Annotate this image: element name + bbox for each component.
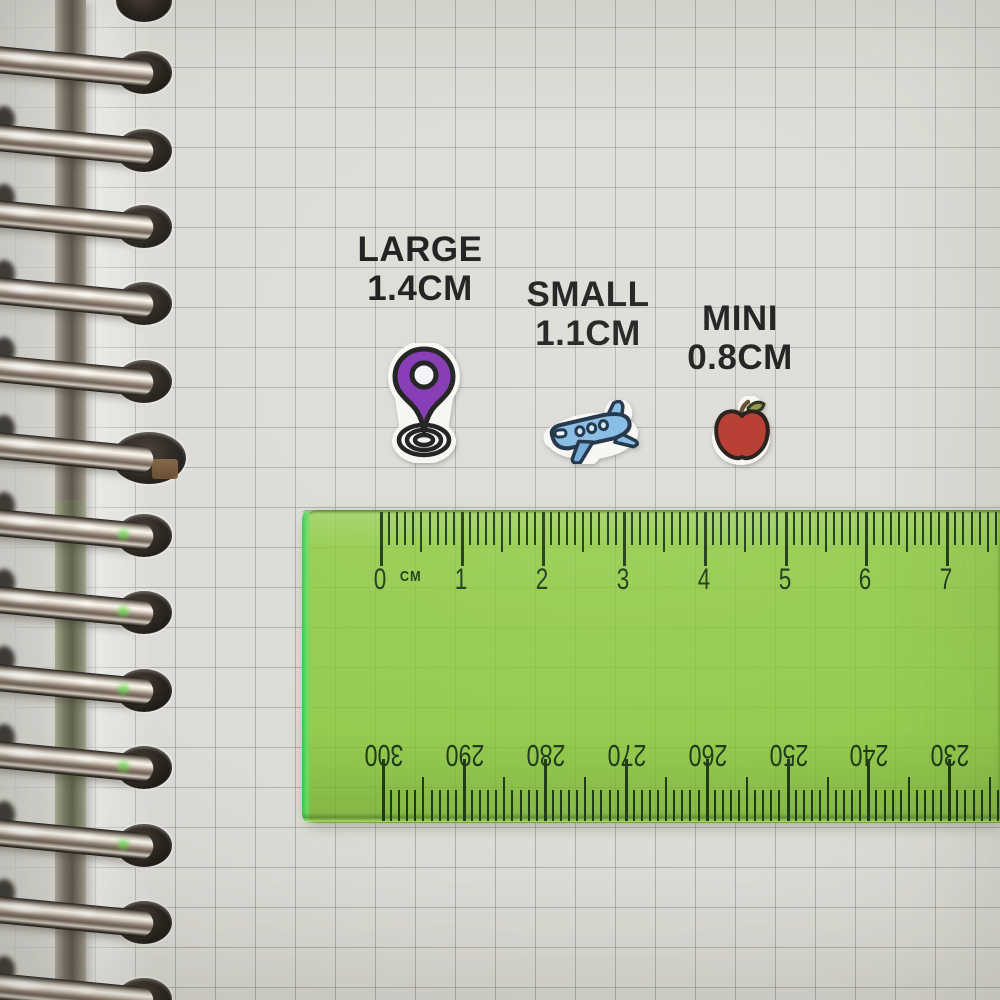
ruler-tick: [776, 512, 778, 545]
ruler-tick: [568, 790, 570, 821]
ruler-tick: [485, 512, 487, 545]
size-name: LARGE: [310, 230, 530, 269]
ruler-number: 270: [604, 737, 649, 773]
ruler-tick: [898, 512, 900, 545]
ruler-reflection-glint: [115, 757, 133, 776]
ruler-left-edge: [302, 510, 311, 823]
ruler-tick: [406, 790, 408, 821]
ruler-tick: [875, 790, 877, 821]
airplane-sticker: [542, 400, 646, 464]
ruler-tick: [770, 790, 772, 821]
ruler-tick: [882, 512, 884, 545]
ruler-tick: [681, 790, 683, 821]
ruler-tick: [825, 512, 827, 552]
ruler-tick: [552, 790, 554, 821]
ruler-tick: [785, 512, 788, 566]
ruler-tick: [396, 512, 398, 545]
ruler-tick: [760, 512, 762, 545]
ruler-tick: [833, 512, 835, 545]
ruler-number: 280: [523, 737, 568, 773]
ruler-tick: [738, 790, 740, 821]
ruler-tick: [398, 790, 400, 821]
ruler-top-edge: [302, 510, 1000, 514]
ruler-tick: [439, 790, 441, 821]
ruler-tick: [908, 777, 910, 821]
ruler-number: 1: [446, 563, 476, 597]
ruler-tick: [509, 512, 511, 545]
ruler-tick: [728, 512, 730, 545]
ruler-tick: [600, 790, 602, 821]
ruler-tick: [574, 512, 576, 545]
ruler-tick: [704, 512, 707, 566]
ruler-tick: [851, 790, 853, 821]
ruler-number: 3: [608, 563, 638, 597]
ruler-reflection-glint: [115, 680, 133, 699]
ruler-tick: [778, 790, 780, 821]
ruler-tick: [730, 790, 732, 821]
ruler-tick: [801, 512, 803, 545]
ruler-tick: [811, 790, 813, 821]
ruler-tick: [712, 512, 714, 545]
ruler-tick: [809, 512, 811, 545]
ruler-tick: [722, 790, 724, 821]
ruler-tick: [744, 512, 746, 552]
ruler-tick: [617, 790, 619, 821]
ruler-tick: [962, 512, 964, 545]
ruler-tick: [906, 512, 908, 552]
ruler-tick: [420, 512, 422, 552]
ruler-tick: [380, 512, 383, 566]
ruler-tick: [633, 790, 635, 821]
ruler-tick: [979, 512, 981, 545]
ruler-tick: [954, 512, 956, 545]
ruler-number: 6: [850, 563, 880, 597]
ruler-tick: [663, 512, 665, 552]
ruler-tick: [803, 790, 805, 821]
ruler-number: 2: [527, 563, 557, 597]
size-label-mini: MINI 0.8CM: [630, 299, 850, 377]
ruler-tick: [495, 790, 497, 821]
ruler-tick: [414, 790, 416, 821]
ruler-tick: [946, 512, 949, 566]
ruler-tick: [550, 512, 552, 545]
ruler-tick: [843, 790, 845, 821]
ruler-number: 290: [442, 737, 487, 773]
ruler-tick: [987, 512, 989, 552]
ruler-tick: [422, 777, 424, 821]
ruler-tick: [938, 512, 940, 545]
ruler: CM 01234567300290280270260250240230: [302, 510, 1000, 823]
ruler-tick: [412, 512, 414, 545]
ruler-tick: [598, 512, 600, 545]
ruler-tick: [859, 790, 861, 821]
ruler-tick: [558, 512, 560, 545]
ruler-tick: [431, 790, 433, 821]
ruler-reflection-glint: [115, 602, 133, 621]
ruler-tick: [520, 790, 522, 821]
ruler-tick: [615, 512, 617, 545]
apple-icon: [716, 402, 768, 458]
ruler-tick: [940, 790, 942, 821]
ruler-number: 0: [365, 563, 395, 597]
ruler-tick: [477, 512, 479, 545]
ruler-tick: [592, 790, 594, 821]
ruler-tick: [487, 790, 489, 821]
ruler-tick: [455, 790, 457, 821]
ruler-tick: [981, 790, 983, 821]
ruler-tick: [534, 512, 536, 545]
ruler-tick: [582, 512, 584, 552]
ruler-tick: [560, 790, 562, 821]
ruler-tick: [528, 790, 530, 821]
ruler-tick: [518, 512, 520, 545]
ruler-tick: [679, 512, 681, 545]
ruler-tick: [429, 512, 431, 545]
ruler-tick: [865, 512, 868, 566]
ruler-tick: [607, 512, 609, 545]
ruler-tick: [501, 512, 503, 552]
ruler-tick: [930, 512, 932, 545]
ruler-tick: [956, 790, 958, 821]
ruler-tick: [673, 790, 675, 821]
ruler-tick: [817, 512, 819, 545]
ruler-tick: [623, 512, 626, 566]
ruler-tick: [736, 512, 738, 545]
ruler-tick: [914, 512, 916, 545]
ruler-tick: [752, 512, 754, 545]
ruler-tick: [689, 790, 691, 821]
ruler-unit-label: CM: [400, 568, 422, 585]
ruler-tick: [453, 512, 455, 545]
ruler-tick: [698, 790, 700, 821]
ruler-tick: [461, 512, 464, 566]
ruler-tick: [536, 790, 538, 821]
ruler-tick: [827, 777, 829, 821]
ruler-tick: [390, 790, 392, 821]
ruler-tick: [892, 790, 894, 821]
ruler-tick: [445, 512, 447, 545]
ruler-tick: [973, 790, 975, 821]
ruler-number: 5: [770, 563, 800, 597]
ruler-tick: [584, 777, 586, 821]
size-value: 0.8CM: [630, 338, 850, 377]
ruler-tick: [647, 512, 649, 545]
ruler-reflection-glint: [115, 525, 133, 544]
ruler-tick: [971, 512, 973, 545]
ruler-tick: [768, 512, 770, 545]
ruler-tick: [989, 777, 991, 821]
ruler-tick: [655, 512, 657, 545]
ruler-reflection-glint: [115, 835, 133, 854]
ruler-tick: [665, 777, 667, 821]
ruler-number: 300: [362, 737, 407, 773]
ruler-tick: [657, 790, 659, 821]
ruler-tick: [447, 790, 449, 821]
ruler-tick: [964, 790, 966, 821]
notebook-photo: LARGE 1.4CM SMALL 1.1CM MINI 0.8CM: [0, 0, 1000, 1000]
ruler-tick: [609, 790, 611, 821]
location-pin-sticker: [383, 343, 465, 463]
ruler-tick: [922, 512, 924, 545]
ruler-number: 4: [689, 563, 719, 597]
ruler-tick: [762, 790, 764, 821]
ruler-tick: [631, 512, 633, 545]
ruler-tick: [526, 512, 528, 545]
ruler-tick: [835, 790, 837, 821]
ruler-tick: [900, 790, 902, 821]
ruler-tick: [641, 790, 643, 821]
ruler-tick: [590, 512, 592, 545]
ruler-tick: [566, 512, 568, 545]
ruler-number: 240: [847, 737, 892, 773]
ruler-tick: [714, 790, 716, 821]
ruler-tick: [687, 512, 689, 545]
ruler-tick: [849, 512, 851, 545]
ruler-tick: [924, 790, 926, 821]
ruler-tick: [437, 512, 439, 545]
ruler-tick: [493, 512, 495, 545]
ruler-tick: [404, 512, 406, 545]
ruler-tick: [884, 790, 886, 821]
ruler-tick: [471, 790, 473, 821]
ruler-tick: [819, 790, 821, 821]
ruler-tick: [795, 790, 797, 821]
ruler-tick: [754, 790, 756, 821]
ruler-tick: [841, 512, 843, 545]
ruler-tick: [793, 512, 795, 545]
ruler-tick: [932, 790, 934, 821]
ruler-number: 250: [766, 737, 811, 773]
ruler-tick: [746, 777, 748, 821]
ruler-number: 260: [685, 737, 730, 773]
ruler-tick: [479, 790, 481, 821]
ruler-tick: [388, 512, 390, 545]
ruler-tick: [720, 512, 722, 545]
ruler-tick: [469, 512, 471, 545]
apple-sticker: [710, 396, 774, 466]
ruler-tick: [576, 790, 578, 821]
ruler-tick: [696, 512, 698, 545]
size-name: MINI: [630, 299, 850, 338]
ruler-tick: [873, 512, 875, 545]
ruler-tick: [995, 512, 997, 545]
ruler-tick: [857, 512, 859, 545]
ruler-tick: [997, 790, 999, 821]
ruler-tick: [542, 512, 545, 566]
ruler-tick: [649, 790, 651, 821]
ruler-tick: [916, 790, 918, 821]
ruler-tick: [503, 777, 505, 821]
ruler-tick: [890, 512, 892, 545]
ruler-tick: [671, 512, 673, 545]
ruler-number: 7: [931, 563, 961, 597]
ruler-number: 230: [928, 737, 973, 773]
ruler-tick: [639, 512, 641, 545]
ruler-tick: [511, 790, 513, 821]
